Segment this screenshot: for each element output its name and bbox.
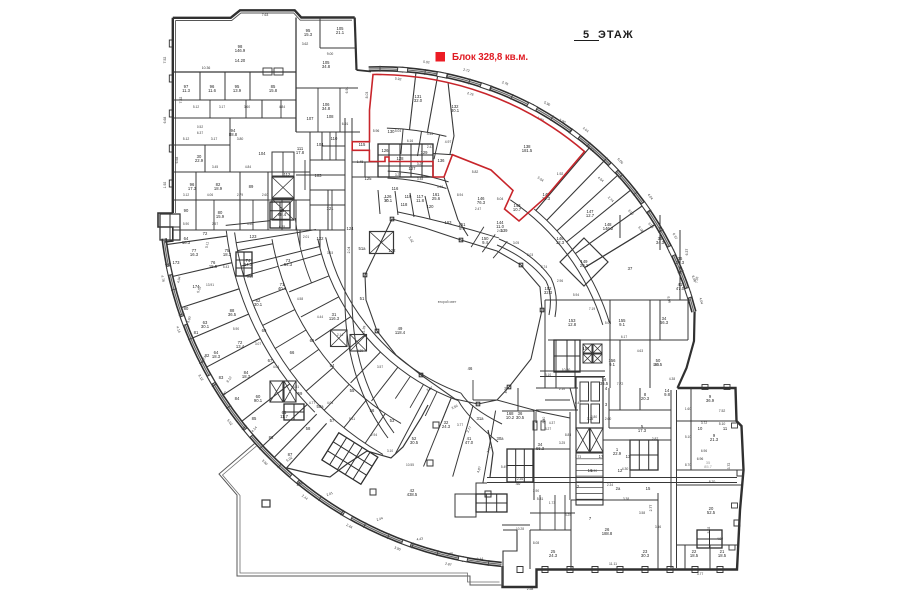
svg-text:126: 126 [382, 148, 390, 153]
svg-text:4.04: 4.04 [327, 401, 333, 405]
svg-text:3.45: 3.45 [212, 165, 218, 169]
svg-text:10.36: 10.36 [202, 66, 211, 70]
svg-text:116: 116 [392, 186, 399, 191]
svg-text:3.56: 3.56 [655, 525, 661, 529]
svg-text:58: 58 [306, 426, 311, 431]
svg-text:4.84: 4.84 [245, 165, 251, 169]
svg-text:122: 122 [317, 236, 325, 241]
svg-text:72: 72 [203, 231, 208, 236]
svg-text:2.60: 2.60 [262, 193, 268, 197]
svg-text:10634.8: 10634.8 [322, 102, 331, 111]
svg-text:1.60: 1.60 [685, 407, 691, 411]
svg-text:11.11: 11.11 [609, 562, 617, 566]
svg-text:9.00: 9.00 [327, 52, 334, 56]
svg-text:2.36: 2.36 [517, 477, 523, 481]
svg-text:3.58: 3.58 [639, 511, 645, 515]
svg-text:4.36: 4.36 [504, 387, 508, 394]
svg-text:65: 65 [310, 338, 315, 343]
svg-text:7.52: 7.52 [179, 97, 183, 104]
svg-text:6.91: 6.91 [342, 122, 349, 126]
svg-text:69: 69 [262, 328, 267, 333]
svg-text:40: 40 [516, 481, 521, 486]
svg-text:119: 119 [405, 194, 412, 199]
svg-text:125: 125 [365, 176, 373, 181]
svg-text:15312.8: 15312.8 [568, 318, 577, 327]
svg-text:5.01: 5.01 [533, 409, 539, 413]
svg-text:3.03: 3.03 [527, 253, 533, 257]
svg-text:5.43: 5.43 [223, 265, 229, 269]
svg-text:3.39: 3.39 [357, 349, 363, 353]
svg-text:121: 121 [327, 206, 335, 211]
svg-text:11711.8: 11711.8 [416, 194, 425, 203]
svg-text:0.52: 0.52 [197, 125, 203, 129]
svg-text:31a: 31a [477, 416, 485, 421]
svg-text:14612.3: 14612.3 [556, 236, 565, 245]
svg-text:13: 13 [626, 454, 631, 459]
svg-text:5.82: 5.82 [472, 170, 479, 174]
svg-text:11.39: 11.39 [362, 326, 367, 335]
svg-text:1.45: 1.45 [357, 160, 364, 164]
svg-text:7.52: 7.52 [163, 57, 167, 64]
svg-text:15232.3: 15232.3 [544, 286, 553, 295]
svg-text:2.10: 2.10 [559, 387, 565, 391]
svg-text:13230.1: 13230.1 [451, 104, 460, 113]
svg-text:127: 127 [409, 166, 417, 171]
svg-text:58a: 58a [317, 404, 325, 409]
svg-text:4.46: 4.46 [247, 222, 253, 226]
svg-text:2.80: 2.80 [591, 415, 597, 419]
svg-text:6.96: 6.96 [701, 449, 707, 453]
svg-text:2.14: 2.14 [337, 333, 343, 337]
svg-text:3.10: 3.10 [387, 449, 393, 453]
svg-text:16810.2: 16810.2 [506, 411, 515, 420]
svg-text:13132.0: 13132.0 [414, 94, 423, 103]
svg-text:3.07: 3.07 [255, 342, 261, 346]
svg-text:3.48: 3.48 [417, 177, 423, 181]
svg-text:2.96: 2.96 [557, 279, 563, 283]
svg-text:6.16: 6.16 [407, 139, 413, 143]
svg-text:124: 124 [347, 226, 355, 231]
svg-text:5.04: 5.04 [395, 129, 401, 133]
svg-text:115: 115 [359, 142, 366, 147]
svg-text:6.91: 6.91 [345, 87, 349, 94]
svg-text:3.27: 3.27 [417, 162, 424, 166]
svg-text:14310.7: 14310.7 [513, 203, 522, 212]
svg-text:59: 59 [298, 391, 303, 396]
svg-text:83: 83 [219, 375, 224, 380]
svg-text:1.73: 1.73 [575, 455, 581, 459]
svg-text:8.70: 8.70 [709, 480, 716, 484]
svg-text:3.90: 3.90 [533, 489, 539, 493]
svg-text:8.88: 8.88 [565, 433, 571, 437]
svg-text:5.10: 5.10 [719, 422, 726, 426]
svg-text:5.96: 5.96 [373, 129, 380, 133]
svg-text:10521.1: 10521.1 [336, 26, 345, 35]
svg-text:14676.3: 14676.3 [477, 196, 486, 205]
svg-text:3.92: 3.92 [653, 363, 659, 367]
svg-text:4.90: 4.90 [591, 469, 597, 473]
svg-text:128: 128 [397, 156, 405, 161]
svg-text:4.92: 4.92 [717, 537, 723, 541]
svg-text:86: 86 [269, 435, 274, 440]
svg-text:2.58: 2.58 [527, 587, 534, 591]
svg-text:2.60: 2.60 [605, 417, 612, 421]
svg-text:2.87: 2.87 [652, 437, 659, 441]
svg-text:57: 57 [330, 418, 335, 423]
svg-text:5.12: 5.12 [193, 105, 199, 109]
svg-text:6.37: 6.37 [685, 249, 689, 256]
svg-text:8.94: 8.94 [457, 193, 463, 197]
svg-text:3.72: 3.72 [701, 421, 707, 425]
svg-text:51a: 51a [359, 246, 367, 251]
svg-text:3.72: 3.72 [727, 463, 731, 470]
svg-text:4.84: 4.84 [279, 105, 285, 109]
svg-text:2.77: 2.77 [649, 505, 653, 512]
svg-text:81: 81 [194, 330, 199, 335]
svg-text:51: 51 [360, 296, 365, 301]
svg-text:5.90: 5.90 [233, 327, 239, 331]
svg-text:4.06: 4.06 [207, 193, 213, 197]
svg-text:90: 90 [184, 208, 189, 213]
svg-text:37: 37 [628, 266, 633, 271]
svg-text:7.19: 7.19 [589, 307, 595, 311]
svg-text:14920.2: 14920.2 [580, 259, 589, 268]
svg-text:3.62: 3.62 [302, 42, 309, 46]
svg-text:3.17: 3.17 [211, 137, 218, 141]
svg-text:4.38: 4.38 [669, 377, 675, 381]
svg-text:129: 129 [421, 150, 429, 155]
svg-text:3.57: 3.57 [377, 365, 383, 369]
svg-text:1.92: 1.92 [163, 182, 167, 189]
svg-text:89: 89 [249, 184, 254, 189]
svg-text:17: 17 [599, 454, 604, 459]
svg-text:85: 85 [252, 416, 257, 421]
svg-text:8.03: 8.03 [365, 92, 369, 99]
svg-text:4.37: 4.37 [549, 421, 555, 425]
svg-text:7.63: 7.63 [262, 13, 269, 17]
svg-text:5.49: 5.49 [501, 465, 507, 469]
svg-text:4.04: 4.04 [273, 365, 279, 369]
svg-text:104: 104 [259, 151, 267, 156]
svg-text:3.12: 3.12 [183, 193, 189, 197]
svg-text:6.68: 6.68 [163, 117, 167, 124]
svg-text:8.70: 8.70 [685, 463, 691, 467]
svg-text:7.52: 7.52 [719, 409, 726, 413]
svg-text:10: 10 [698, 426, 703, 431]
svg-text:3.05: 3.05 [513, 241, 519, 245]
svg-text:55: 55 [350, 388, 355, 393]
svg-text:173: 173 [173, 260, 181, 265]
svg-text:4.97: 4.97 [445, 140, 452, 144]
svg-text:4.44: 4.44 [317, 315, 323, 319]
svg-text:Блок 328,8 кв.м.: Блок 328,8 кв.м. [452, 52, 528, 63]
svg-text:66: 66 [290, 350, 295, 355]
svg-text:5.12: 5.12 [183, 137, 190, 141]
svg-text:11: 11 [723, 426, 728, 431]
svg-text:3.17: 3.17 [219, 105, 225, 109]
svg-text:3.38: 3.38 [623, 497, 629, 501]
svg-text:3.25: 3.25 [559, 441, 565, 445]
svg-text:2.47: 2.47 [475, 207, 481, 211]
svg-text:3.60: 3.60 [244, 105, 250, 109]
svg-text:3.77: 3.77 [457, 423, 463, 427]
svg-text:112: 112 [284, 172, 291, 177]
svg-text:4.45: 4.45 [427, 132, 434, 136]
svg-text:2.04: 2.04 [347, 247, 351, 254]
svg-text:3.25: 3.25 [565, 513, 571, 517]
svg-text:10.55: 10.55 [406, 463, 414, 467]
svg-text:6.17: 6.17 [621, 335, 627, 339]
svg-text:2.79: 2.79 [237, 193, 243, 197]
svg-text:56: 56 [370, 408, 375, 413]
svg-text:5.90: 5.90 [183, 222, 189, 226]
svg-text:3.46: 3.46 [437, 185, 443, 189]
svg-text:2.03: 2.03 [497, 229, 503, 233]
svg-text:107: 107 [307, 116, 315, 121]
svg-text:4.30: 4.30 [622, 467, 629, 471]
svg-text:5.04: 5.04 [497, 197, 504, 201]
svg-text:10.28: 10.28 [516, 527, 524, 531]
svg-text:8.08: 8.08 [533, 541, 539, 545]
svg-text:1.73: 1.73 [549, 501, 555, 505]
svg-text:2.44: 2.44 [476, 557, 483, 562]
svg-text:67: 67 [268, 358, 273, 363]
svg-text:14.20: 14.20 [235, 58, 246, 63]
svg-text:2.43: 2.43 [427, 145, 433, 149]
svg-text:118: 118 [401, 202, 408, 207]
svg-text:5.94: 5.94 [573, 293, 579, 297]
svg-text:13.91: 13.91 [206, 283, 214, 287]
svg-text:30a: 30a [497, 436, 505, 441]
svg-text:2.01: 2.01 [303, 235, 309, 239]
svg-text:46: 46 [468, 366, 473, 371]
svg-text:6.37: 6.37 [197, 131, 203, 135]
svg-text:3.80: 3.80 [237, 137, 244, 141]
svg-text:103: 103 [315, 173, 323, 178]
svg-text:5.11: 5.11 [349, 417, 355, 421]
svg-text:2.57: 2.57 [212, 222, 218, 226]
svg-text:1.92: 1.92 [557, 172, 564, 176]
svg-text:54: 54 [330, 363, 335, 368]
svg-text:80: 80 [184, 306, 189, 311]
svg-text:108: 108 [327, 114, 335, 119]
svg-text:10534.8: 10534.8 [322, 60, 331, 69]
svg-text:2.94: 2.94 [371, 433, 377, 437]
svg-text:6.68: 6.68 [175, 157, 179, 164]
svg-text:3.27: 3.27 [395, 173, 401, 177]
svg-text:120: 120 [427, 204, 435, 209]
svg-text:110: 110 [331, 136, 338, 141]
svg-text:84: 84 [235, 396, 240, 401]
svg-text:53: 53 [390, 418, 395, 423]
svg-text:3.27: 3.27 [545, 427, 551, 431]
svg-text:5.02: 5.02 [707, 527, 711, 534]
svg-text:5.03: 5.03 [605, 321, 611, 325]
svg-text:4.63: 4.63 [637, 349, 643, 353]
svg-text:16125.6: 16125.6 [432, 192, 441, 201]
svg-text:14712.7: 14712.7 [586, 209, 595, 218]
svg-text:2.34: 2.34 [607, 483, 613, 487]
svg-text:3.10: 3.10 [545, 373, 551, 377]
svg-text:3.77: 3.77 [697, 572, 704, 576]
svg-text:ЭТАЖ: ЭТАЖ [598, 29, 634, 41]
svg-text:15: 15 [646, 486, 651, 491]
svg-text:2a: 2a [616, 486, 621, 491]
svg-text:2.74: 2.74 [541, 265, 547, 269]
svg-text:3.93: 3.93 [327, 251, 333, 255]
svg-text:4.77: 4.77 [309, 401, 315, 405]
svg-text:5: 5 [583, 29, 589, 41]
svg-text:4.58: 4.58 [297, 297, 303, 301]
svg-text:123: 123 [250, 234, 258, 239]
svg-text:122: 122 [389, 248, 397, 253]
svg-text:6.40: 6.40 [575, 401, 581, 405]
svg-text:второй свет: второй свет [438, 300, 457, 304]
svg-text:4.51: 4.51 [293, 385, 299, 389]
svg-text:136: 136 [438, 158, 446, 163]
svg-text:6.96: 6.96 [697, 457, 704, 461]
svg-text:5.10: 5.10 [685, 435, 691, 439]
